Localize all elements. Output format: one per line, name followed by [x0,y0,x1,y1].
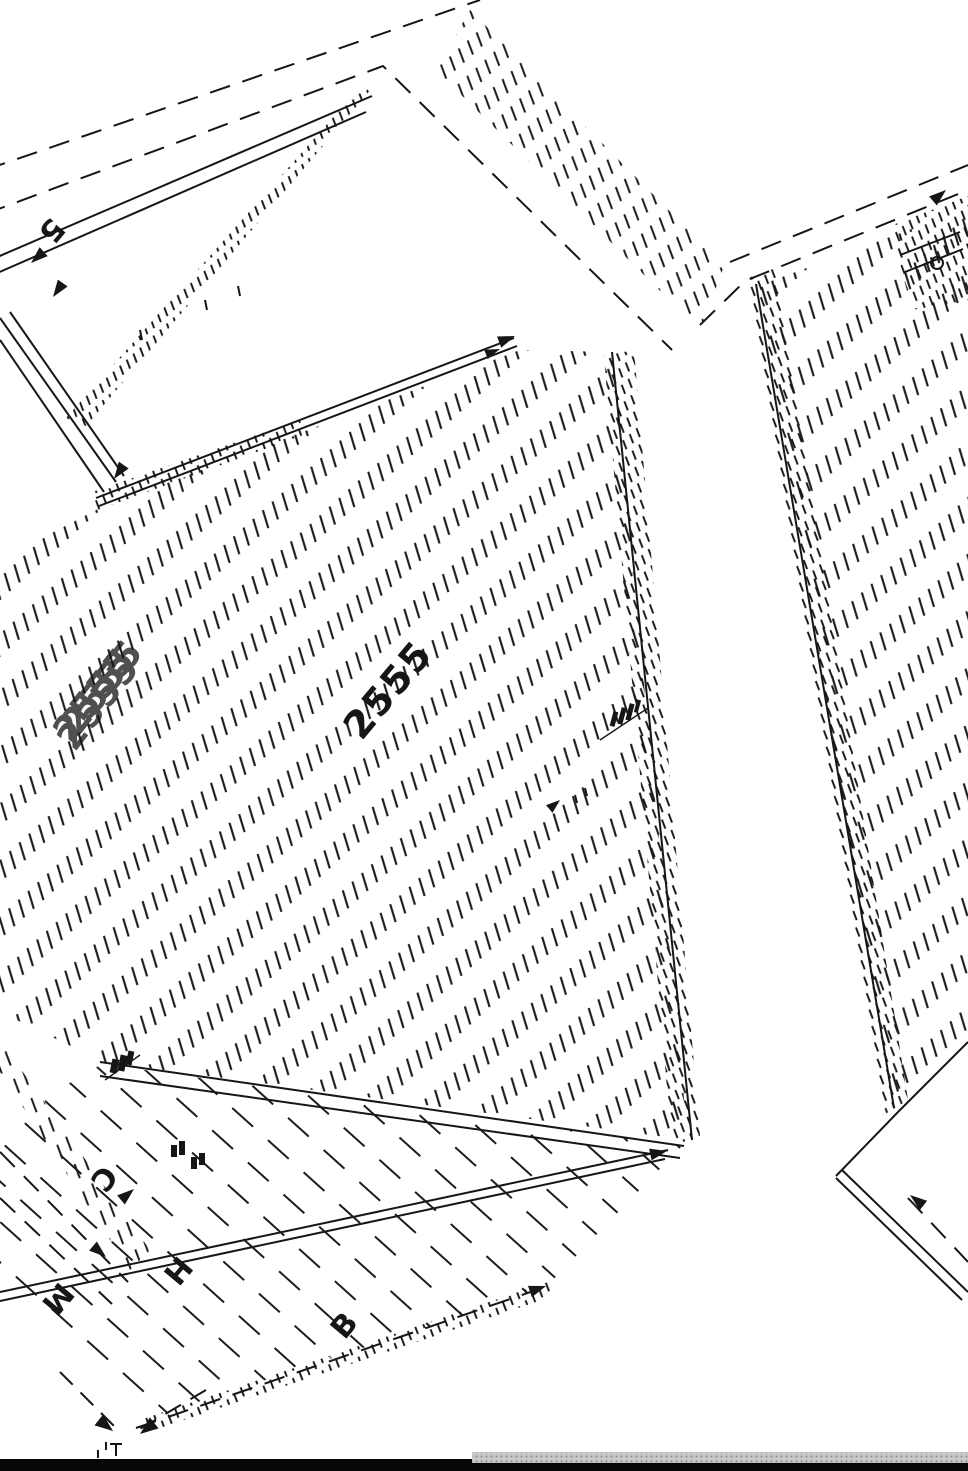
drawing-page: 2555 2555 2555 2555 [0,0,968,1471]
technical-drawing: 2555 2555 2555 2555 [0,0,968,1471]
horizontal-scrollbar[interactable] [472,1452,968,1463]
